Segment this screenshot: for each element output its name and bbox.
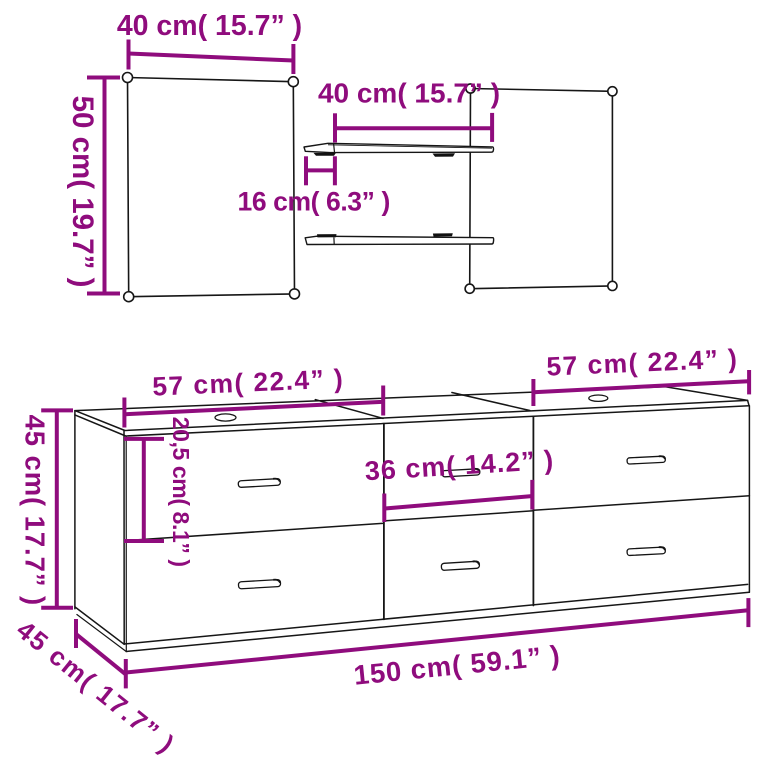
svg-text:50 cm( 19.7” ): 50 cm( 19.7” ) xyxy=(66,96,99,288)
svg-text:20,5 cm( 8.1” ): 20,5 cm( 8.1” ) xyxy=(168,417,194,567)
svg-text:40 cm( 15.7” ): 40 cm( 15.7” ) xyxy=(318,78,500,109)
svg-text:45 cm( 17.7” ): 45 cm( 17.7” ) xyxy=(20,415,51,606)
svg-text:16 cm( 6.3” ): 16 cm( 6.3” ) xyxy=(237,187,389,217)
svg-text:40 cm( 15.7” ): 40 cm( 15.7” ) xyxy=(117,10,302,42)
